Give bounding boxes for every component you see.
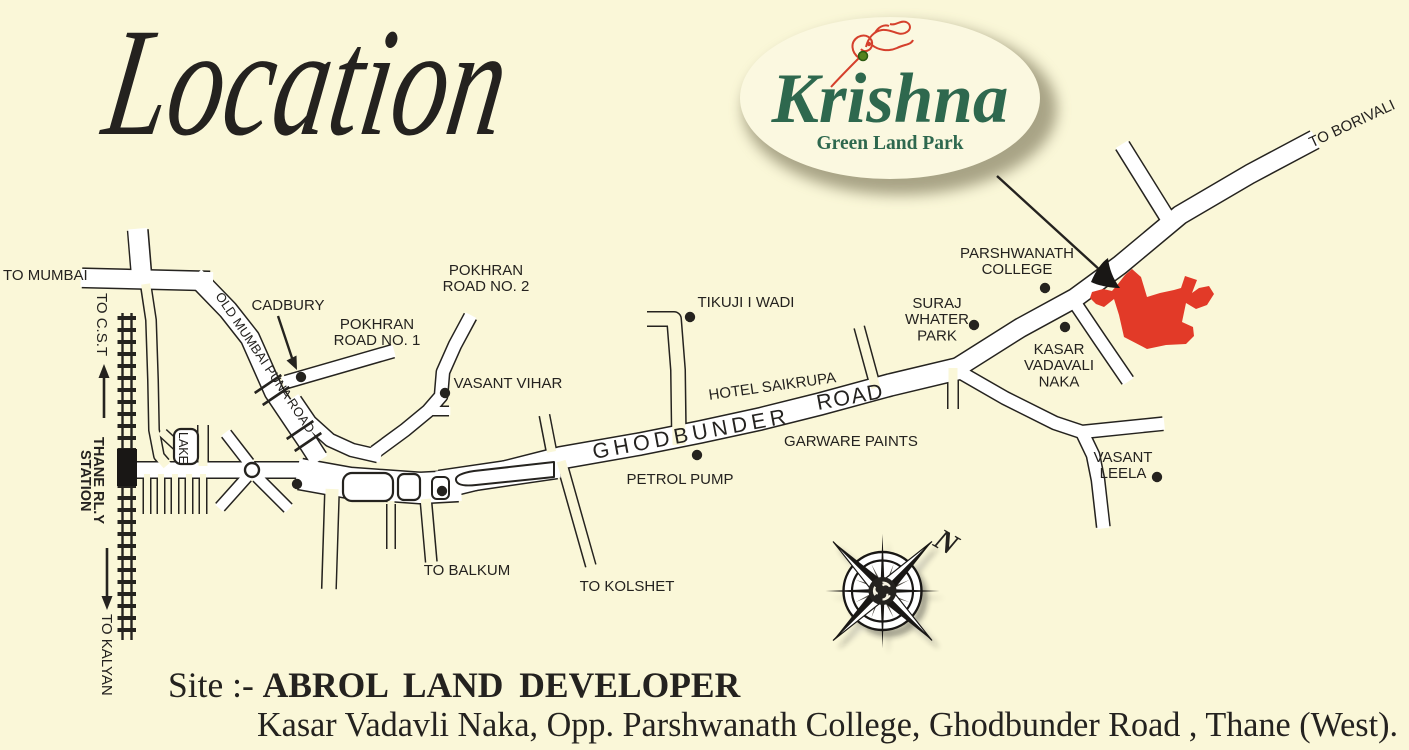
- svg-text:PETROL PUMP: PETROL PUMP: [627, 471, 734, 488]
- svg-text:Site :- ABROL LAND DEVELOPER: Site :- ABROL LAND DEVELOPER: [168, 665, 741, 705]
- svg-text:GARWARE PAINTS: GARWARE PAINTS: [784, 433, 918, 450]
- svg-text:TO C.S.T: TO C.S.T: [93, 293, 110, 356]
- svg-text:VASANT VIHAR: VASANT VIHAR: [454, 375, 563, 392]
- svg-text:POKHRANROAD NO. 1: POKHRANROAD NO. 1: [334, 316, 421, 349]
- svg-text:TO KOLSHET: TO KOLSHET: [580, 578, 675, 595]
- svg-text:TO BALKUM: TO BALKUM: [424, 562, 510, 579]
- svg-text:Kasar Vadavli Naka, Opp. Parsh: Kasar Vadavli Naka, Opp. Parshwanath Col…: [257, 705, 1398, 744]
- svg-text:CADBURY: CADBURY: [251, 297, 324, 314]
- svg-text:TO MUMBAI: TO MUMBAI: [3, 267, 88, 284]
- svg-text:Location: Location: [93, 0, 519, 168]
- svg-text:Krishna: Krishna: [771, 60, 1009, 138]
- svg-text:TO KALYAN: TO KALYAN: [98, 614, 115, 696]
- svg-text:POKHRANROAD NO. 2: POKHRANROAD NO. 2: [443, 262, 530, 295]
- svg-text:TIKUJI I WADI: TIKUJI I WADI: [698, 294, 795, 311]
- svg-text:Green Land Park: Green Land Park: [817, 133, 964, 154]
- svg-text:LAKE: LAKE: [176, 432, 190, 464]
- svg-text:STATION: STATION: [77, 450, 93, 511]
- svg-text:VASANTLEELA: VASANTLEELA: [1094, 449, 1153, 482]
